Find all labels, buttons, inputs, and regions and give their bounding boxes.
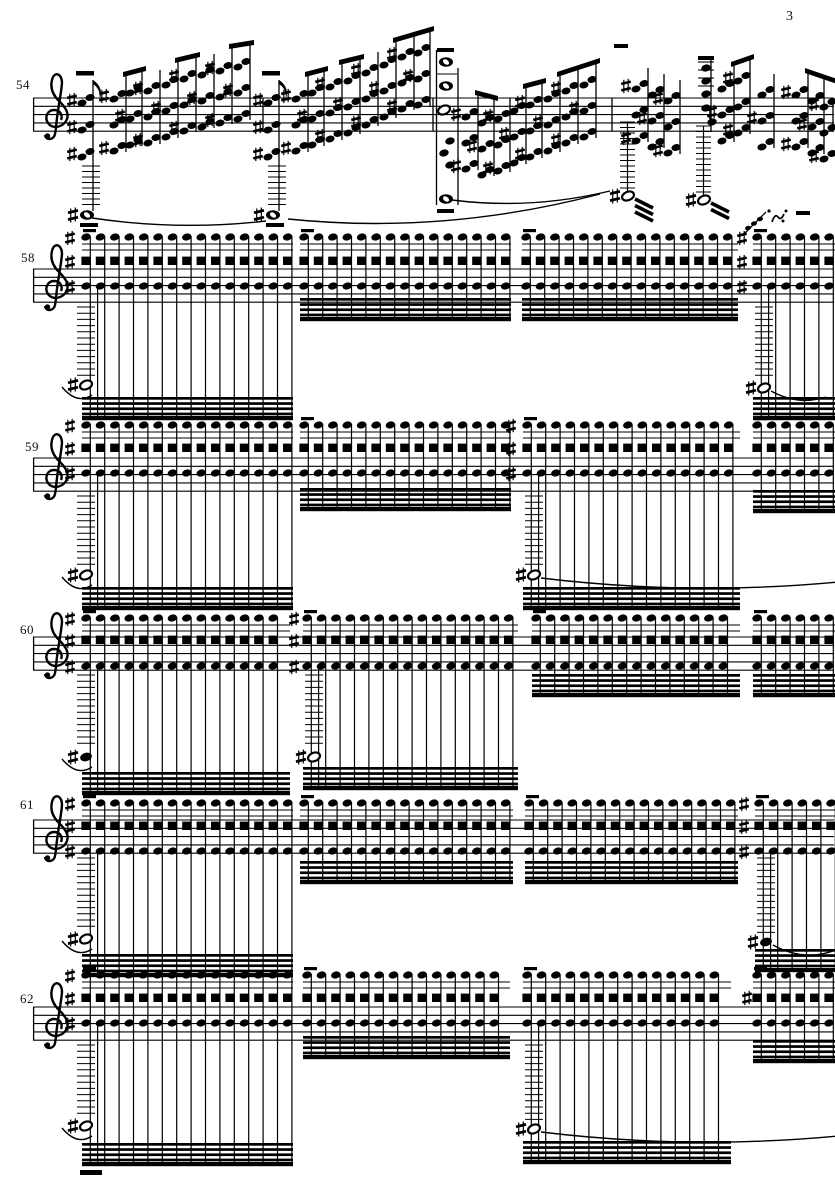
tremolo-group — [298, 229, 511, 321]
system-62 — [33, 967, 835, 1175]
tremolo-group — [520, 229, 738, 321]
tremolo-group — [523, 795, 738, 884]
tremolo-group — [737, 209, 835, 420]
measure-content — [437, 48, 611, 213]
measure-content — [610, 44, 835, 223]
system-58 — [33, 209, 835, 420]
tremolo-group — [62, 610, 290, 795]
measure-content — [67, 40, 266, 227]
tremolo-group — [289, 610, 518, 790]
score-notation — [0, 0, 835, 1181]
score-page: 3 54 58 59 60 61 62 — [0, 0, 835, 1181]
system-60 — [33, 610, 835, 795]
tremolo-group — [298, 795, 513, 884]
tremolo-group — [301, 967, 510, 1059]
tremolo-group — [62, 417, 293, 610]
tremolo-group — [62, 229, 293, 420]
system-61 — [33, 795, 835, 977]
tremolo-group — [62, 967, 293, 1175]
tremolo-group — [739, 795, 835, 972]
tremolo-group — [751, 417, 835, 513]
tremolo-group — [298, 417, 511, 511]
tremolo-group — [62, 795, 293, 977]
system-59 — [33, 417, 835, 610]
system-54 — [33, 26, 835, 227]
